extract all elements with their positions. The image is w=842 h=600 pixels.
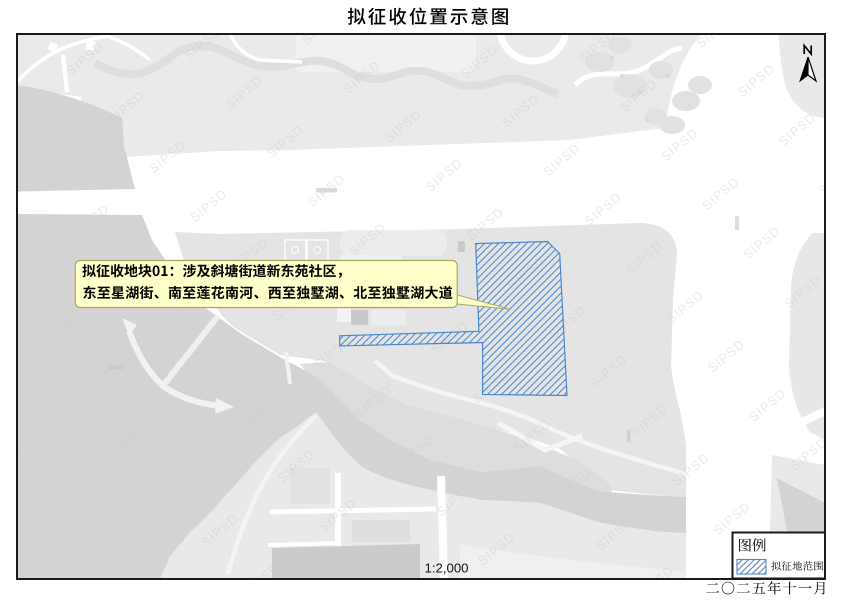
svg-text:1:2,000: 1:2,000: [425, 561, 469, 576]
